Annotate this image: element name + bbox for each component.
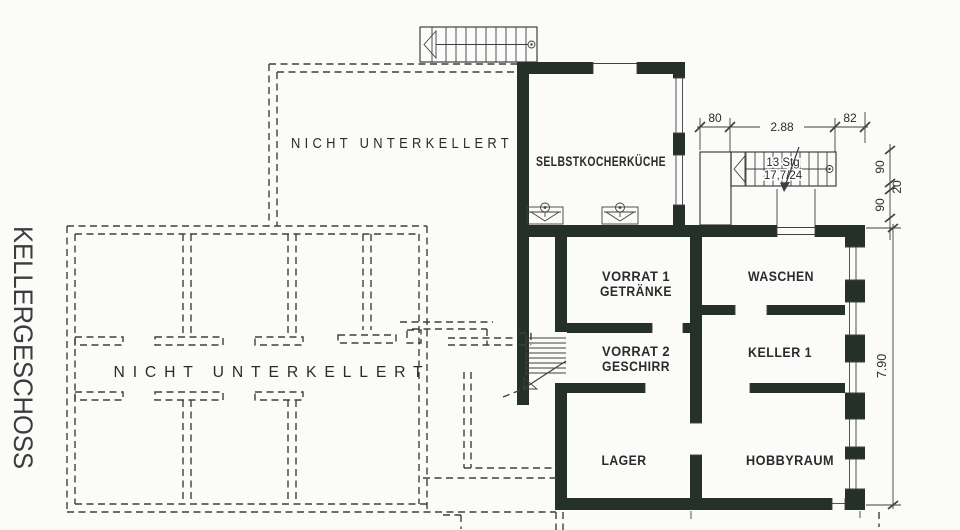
dimension-v-bottom: 90 xyxy=(873,198,887,212)
room-label-kitchen: SELBSTKOCHERKÜCHE xyxy=(536,154,666,169)
dimension-building-depth: 7.90 xyxy=(866,224,901,509)
floor-plan-page: KELLERGESCHOSS NICHT UNTERKELLERT xyxy=(0,0,960,530)
page-title: KELLERGESCHOSS xyxy=(8,226,38,469)
dimension-stair-offset: 82 xyxy=(843,111,857,125)
kitchen-walls xyxy=(517,62,685,230)
floor-plan-drawing: KELLERGESCHOSS NICHT UNTERKELLERT xyxy=(0,0,960,530)
room-label-lager: LAGER xyxy=(602,453,647,468)
dimension-depth-value: 7.90 xyxy=(875,354,889,378)
room-label-vorrat1-sub: GETRÄNKE xyxy=(600,284,672,299)
room-labels: VORRAT 1 GETRÄNKE WASCHEN VORRAT 2 GESCH… xyxy=(600,269,834,468)
room-label-vorrat2-sub: GESCHIRR xyxy=(602,359,670,374)
sink-icon xyxy=(527,203,563,224)
room-label-waschen: WASCHEN xyxy=(748,269,814,284)
stair-arrow-icon xyxy=(424,31,436,58)
dimension-stair-run: 2.88 xyxy=(770,120,794,134)
room-label-keller1: KELLER 1 xyxy=(748,345,812,360)
stair-annotation-line2: 17,7/24 xyxy=(764,170,803,182)
dimension-v-top: 90 xyxy=(873,160,887,174)
top-stair xyxy=(420,27,537,62)
upper-region-label: NICHT UNTERKELLERT xyxy=(291,135,513,152)
dimension-landing-width: 80 xyxy=(708,111,722,125)
dimension-v-mid: 20 xyxy=(890,180,904,194)
exterior-stair: 13 Stg 17,7/24 xyxy=(700,147,836,225)
sink-icon xyxy=(602,203,638,224)
room-label-hobbyraum: HOBBYRAUM xyxy=(746,453,834,468)
room-label-vorrat1: VORRAT 1 xyxy=(602,269,670,284)
dimension-right-small: 90 20 90 xyxy=(873,144,904,240)
dimension-top: 80 2.88 82 xyxy=(695,111,870,152)
stair-arrow-icon xyxy=(734,156,745,182)
room-label-vorrat2: VORRAT 2 xyxy=(602,344,670,359)
lower-region-label: NICHT UNTERKELLERT xyxy=(114,364,431,381)
